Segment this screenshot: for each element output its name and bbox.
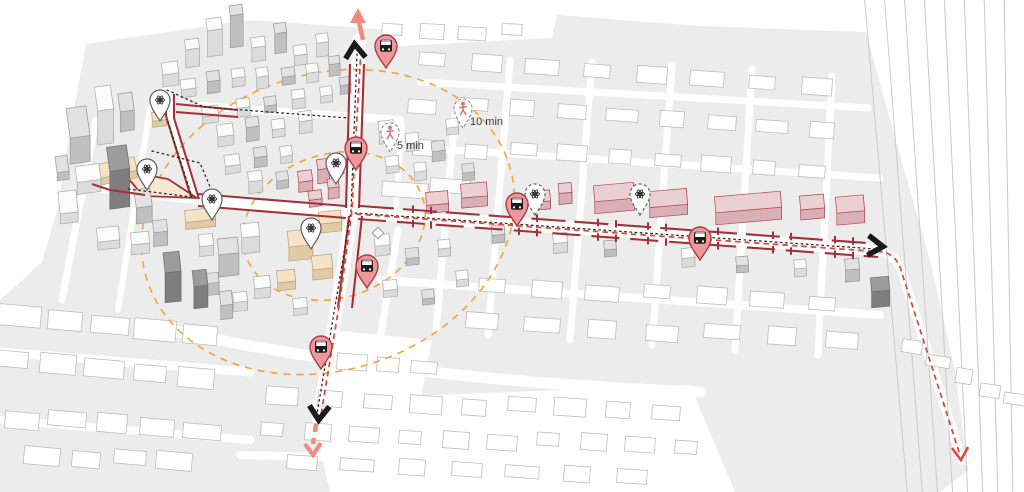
urban-transit-axonometric-map: 5 min10 min (0, 0, 1024, 492)
bus-front-icon (694, 232, 706, 244)
bus-front-icon (380, 40, 392, 52)
bus-front-icon (350, 142, 362, 154)
walk-time-label: 10 min (470, 116, 503, 128)
map-canvas: 5 min10 min (0, 0, 1024, 492)
bus-front-icon (361, 260, 373, 272)
bus-front-icon (315, 341, 327, 353)
walk-time-label: 5 min (397, 140, 424, 152)
bus-front-icon (511, 198, 523, 210)
